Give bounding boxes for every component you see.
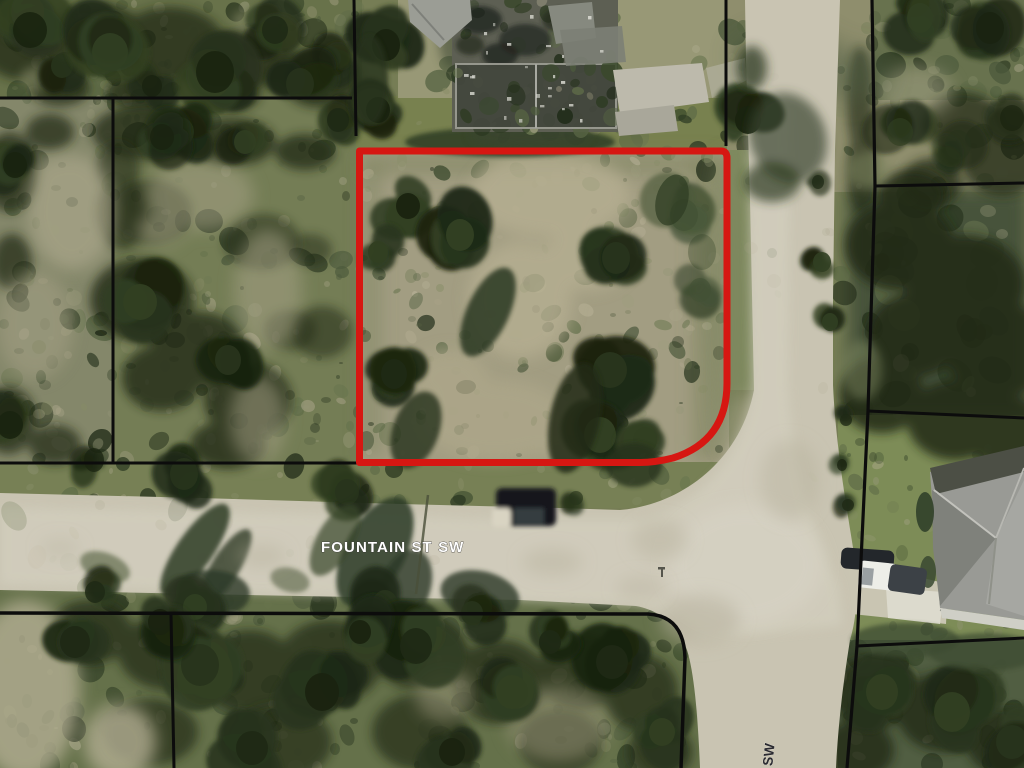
svg-text:FOUNTAIN ST SW: FOUNTAIN ST SW xyxy=(321,539,464,556)
